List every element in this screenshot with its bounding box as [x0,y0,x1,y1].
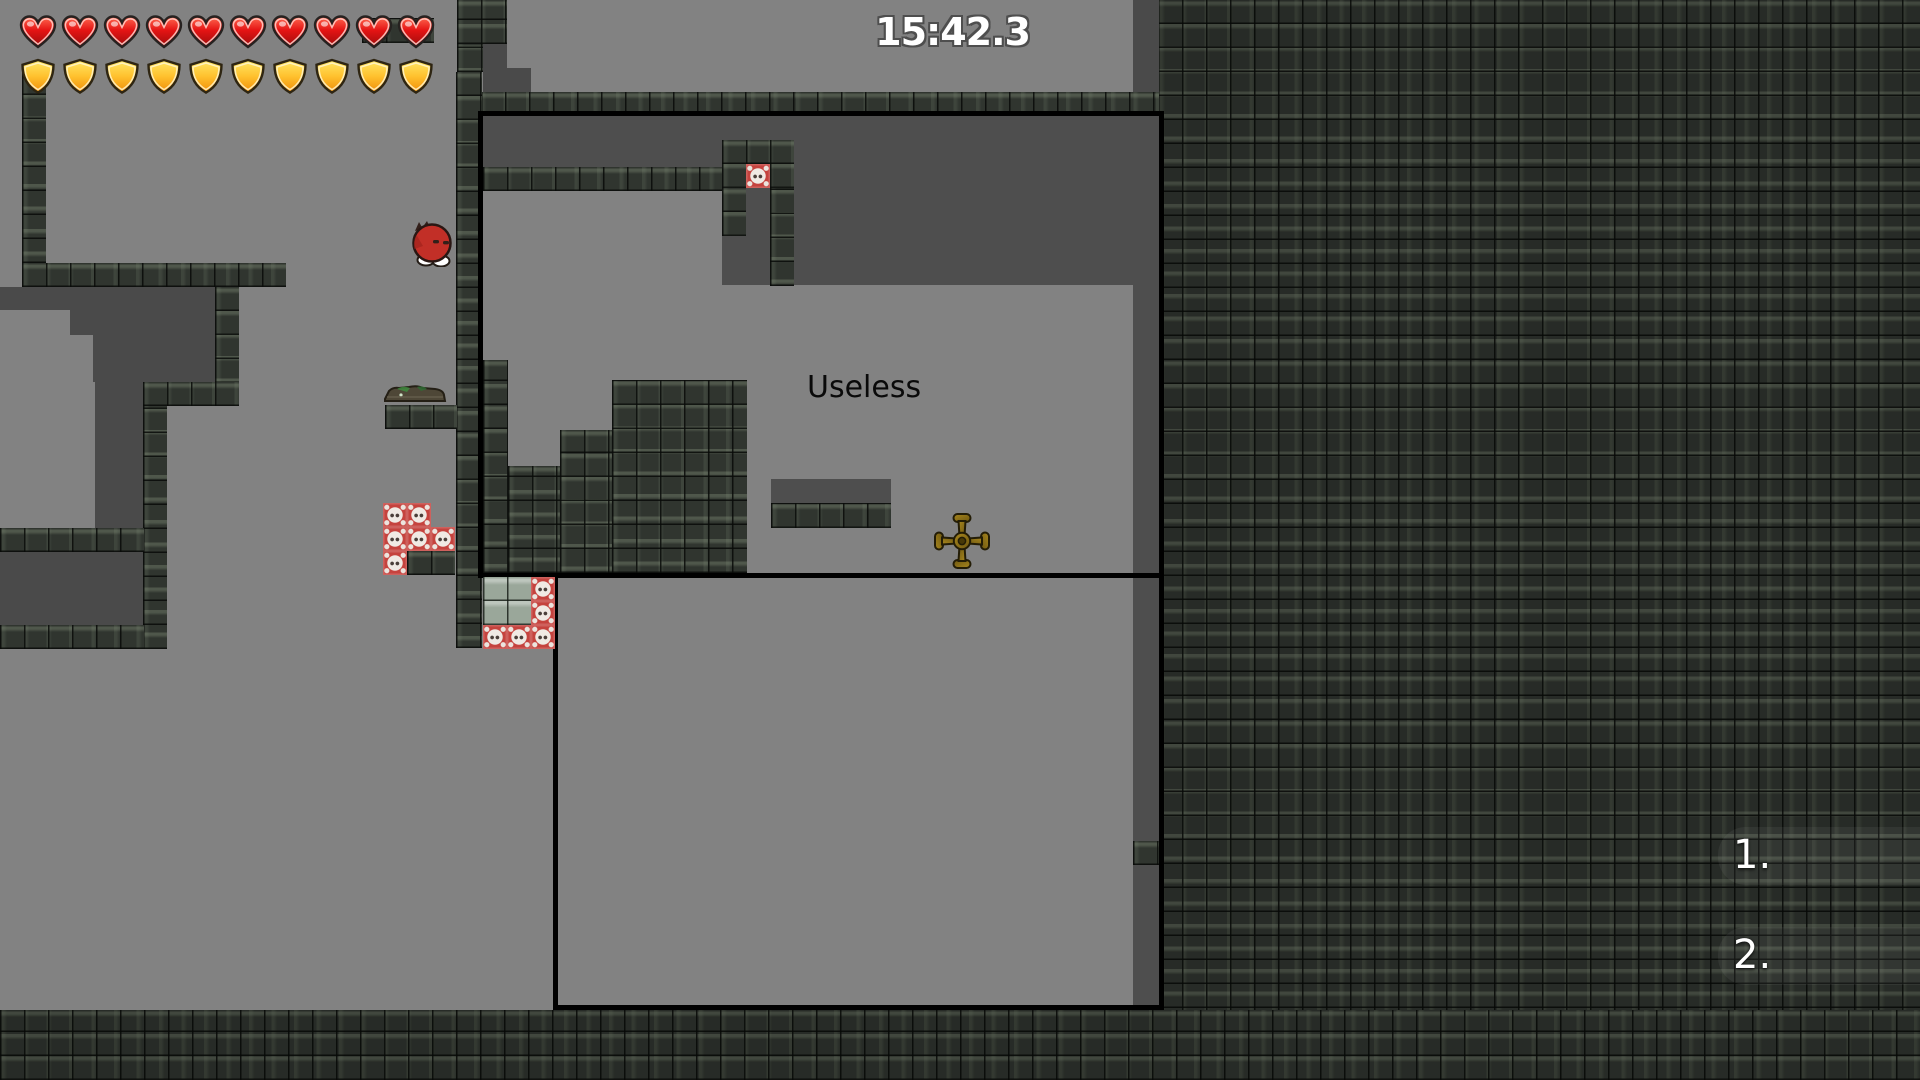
cross-shuriken [934,512,990,570]
shield-icon [19,58,57,98]
shield-icon [229,58,267,98]
pale-block [483,577,531,625]
tile-column [215,287,239,383]
shield-icon [187,58,225,98]
shield-icon [145,58,183,98]
skull-crossbones-tile [746,164,770,188]
heart-icon [18,14,58,54]
skull-crossbones-tile [507,625,531,649]
player-character [402,219,460,267]
room-bottom [553,573,1164,1010]
skull-crossbones-tile [431,527,455,551]
shield-icon [271,58,309,98]
tile-row [483,167,723,191]
heart-icon [312,14,352,54]
shield-icon [313,58,351,98]
tile-block [612,380,747,573]
skull-crossbones-tile [531,601,555,625]
shield-icon [355,58,393,98]
heart-icon [354,14,394,54]
tube-interior [0,552,143,625]
cave-region [0,287,215,310]
skull-crossbones-tile [383,503,407,527]
cave-step [483,68,531,92]
room-dark-band [1133,578,1159,1005]
platform-backdrop [771,479,891,503]
tube-top-row [0,528,144,552]
game-canvas[interactable]: Useless 1. 2. [0,0,1920,1080]
tile-row [22,263,286,287]
tile-pair [407,551,455,575]
shield-icon [397,58,435,98]
wall-top-block [457,0,507,44]
cave-step [483,44,507,68]
room-top: Useless [478,111,1164,578]
tile-column [22,70,46,263]
heart-icon [186,14,226,54]
tile-block [508,466,560,573]
skull-crossbones-tile [483,625,507,649]
heart-icon [396,14,436,54]
skull-crossbones-tile [407,503,431,527]
heart-icon [60,14,100,54]
tile-column [143,406,167,649]
hearts-bar [18,14,436,54]
tile-row [143,382,239,406]
skull-crossbones-tile [531,625,555,649]
heart-icon [102,14,142,54]
band-tile [1133,841,1159,865]
croc-ledge [385,405,457,429]
tile-column [770,188,794,286]
skull-crossbones-tile [407,527,431,551]
crocodile-sprite [383,383,447,405]
shields-bar [19,58,435,98]
tile-column [722,188,746,236]
skull-crossbones-tile [531,577,555,601]
skull-crossbones-tile [383,527,407,551]
tile-block [560,430,612,573]
right-tile-field [1158,0,1920,1080]
game-timer: 15:42.3 [800,10,1030,54]
room-name-label: Useless [807,370,921,405]
room-dark-band [1133,116,1159,573]
cave-shaft [95,382,143,528]
platform-tiles [771,503,891,528]
skull-crossbones-tile [383,551,407,575]
cave-region [93,335,215,382]
wall-top-block [457,44,483,72]
cave-region [70,310,215,335]
tube-bottom-row [0,625,144,649]
marker-2-label: 2. [1733,932,1771,978]
bottom-tile-strip [0,1010,1920,1080]
heart-icon [144,14,184,54]
shield-icon [61,58,99,98]
cave-slot [1133,0,1159,92]
heart-icon [270,14,310,54]
heart-icon [228,14,268,54]
tile-block [483,360,508,573]
shield-icon [103,58,141,98]
marker-1-label: 1. [1733,832,1771,878]
